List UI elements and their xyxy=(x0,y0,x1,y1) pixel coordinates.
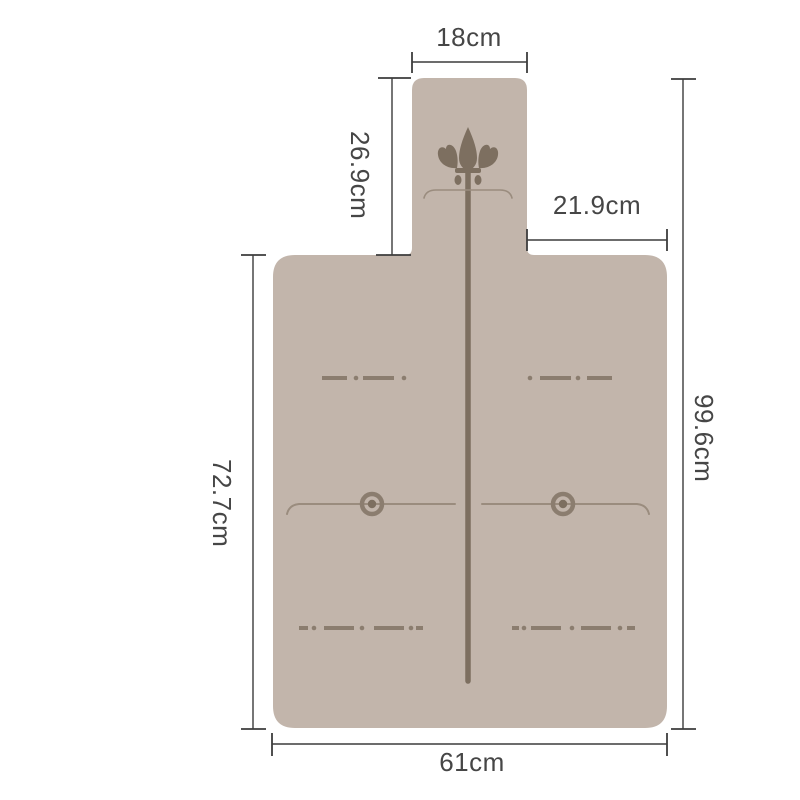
dim-line-neck-height xyxy=(376,78,411,255)
upper-dash-pattern-left xyxy=(322,376,406,381)
label-neck-height: 26.9cm xyxy=(347,110,373,240)
label-overall-height: 99.6cm xyxy=(691,373,717,503)
dim-line-body-height xyxy=(241,255,266,729)
label-body-height: 72.7cm xyxy=(209,438,235,568)
dimension-diagram-svg xyxy=(0,0,800,800)
label-bottom-width: 61cm xyxy=(402,749,542,775)
label-top-width: 18cm xyxy=(399,24,539,50)
dimension-diagram: 18cm 26.9cm 21.9cm 99.6cm 72.7cm 61cm xyxy=(0,0,800,800)
dim-line-shoulder-width xyxy=(527,229,667,251)
upper-dash-pattern-right xyxy=(528,376,612,381)
label-shoulder-width: 21.9cm xyxy=(527,192,667,218)
dim-line-top-width xyxy=(412,52,527,73)
